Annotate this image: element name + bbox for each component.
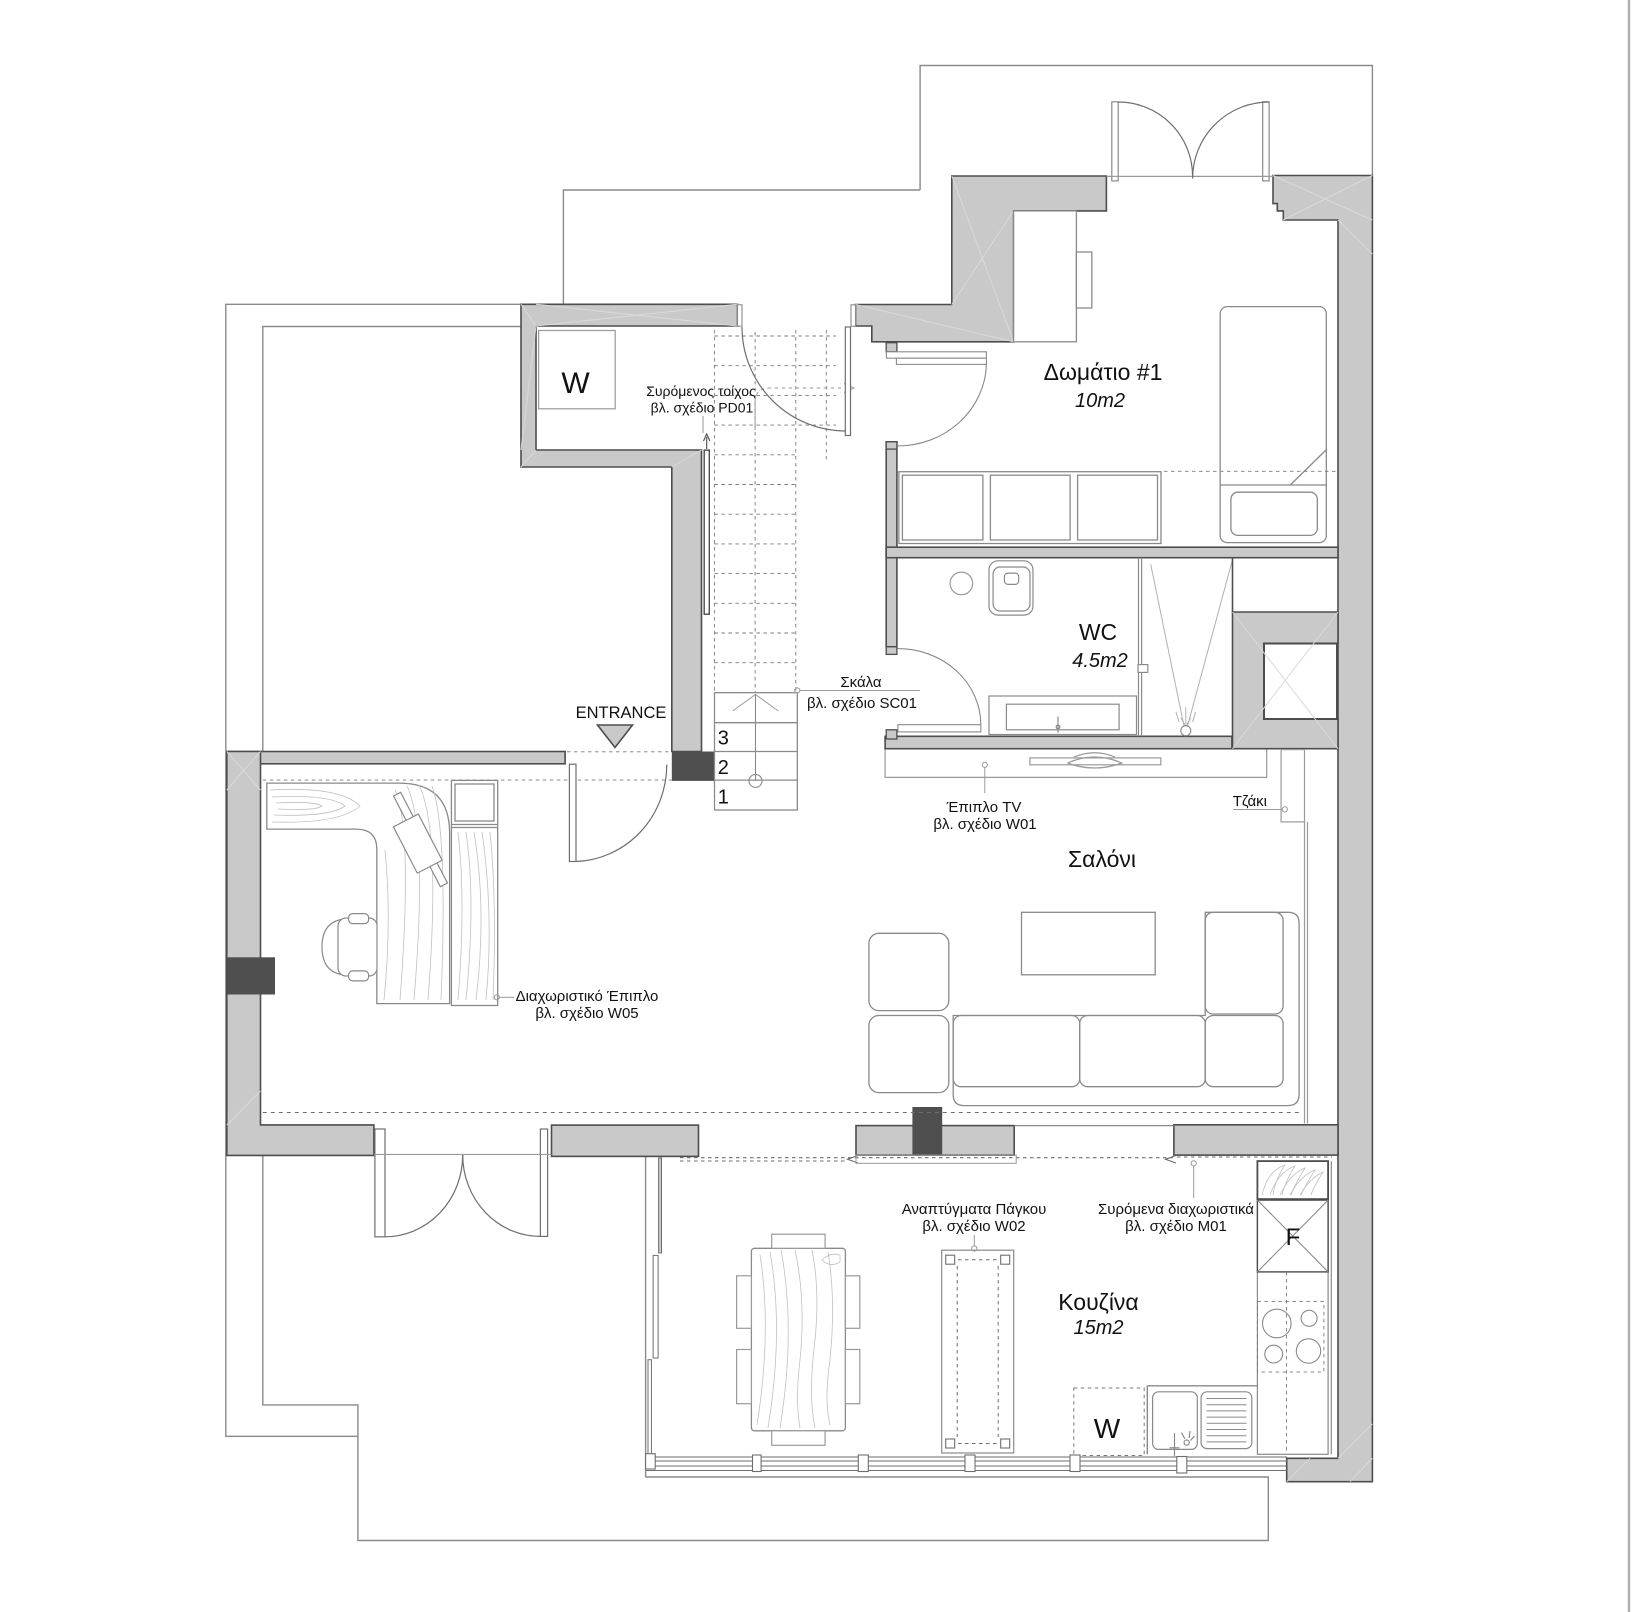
svg-text:Δωμάτιο #1: Δωμάτιο #1 bbox=[1044, 359, 1163, 385]
svg-text:10m2: 10m2 bbox=[1075, 390, 1125, 412]
svg-text:Τζάκι: Τζάκι bbox=[1233, 793, 1267, 810]
svg-text:1: 1 bbox=[718, 787, 729, 809]
svg-text:βλ. σχέδιο PD01: βλ. σχέδιο PD01 bbox=[651, 400, 754, 416]
svg-text:Διαχωριστικό Έπιπλο: Διαχωριστικό Έπιπλο bbox=[516, 988, 659, 1005]
svg-text:4.5m2: 4.5m2 bbox=[1072, 650, 1128, 672]
svg-text:F: F bbox=[1286, 1224, 1301, 1251]
svg-text:Συρόμενα διαχωριστικά: Συρόμενα διαχωριστικά bbox=[1098, 1201, 1254, 1218]
svg-text:ENTRANCE: ENTRANCE bbox=[576, 704, 667, 722]
svg-text:Αναπτύγματα Πάγκου: Αναπτύγματα Πάγκου bbox=[902, 1201, 1047, 1218]
svg-text:2: 2 bbox=[718, 757, 729, 779]
svg-text:W: W bbox=[1094, 1413, 1121, 1444]
svg-text:βλ. σχέδιο W05: βλ. σχέδιο W05 bbox=[535, 1005, 638, 1022]
svg-text:βλ. σχέδιο M01: βλ. σχέδιο M01 bbox=[1125, 1218, 1227, 1235]
svg-text:15m2: 15m2 bbox=[1073, 1317, 1123, 1339]
svg-text:W: W bbox=[561, 367, 590, 400]
svg-text:Έπιπλο TV: Έπιπλο TV bbox=[946, 799, 1022, 816]
svg-text:Συρόμενος τοίχος: Συρόμενος τοίχος bbox=[646, 383, 756, 399]
svg-text:βλ. σχέδιο W02: βλ. σχέδιο W02 bbox=[922, 1218, 1025, 1235]
svg-text:Σκάλα: Σκάλα bbox=[840, 674, 882, 691]
svg-text:Κουζίνα: Κουζίνα bbox=[1058, 1289, 1138, 1315]
svg-text:βλ. σχέδιο W01: βλ. σχέδιο W01 bbox=[933, 816, 1036, 833]
svg-text:3: 3 bbox=[718, 728, 729, 750]
svg-text:WC: WC bbox=[1079, 619, 1117, 645]
svg-text:βλ. σχέδιο SC01: βλ. σχέδιο SC01 bbox=[807, 695, 917, 712]
svg-text:Σαλόνι: Σαλόνι bbox=[1068, 846, 1136, 872]
